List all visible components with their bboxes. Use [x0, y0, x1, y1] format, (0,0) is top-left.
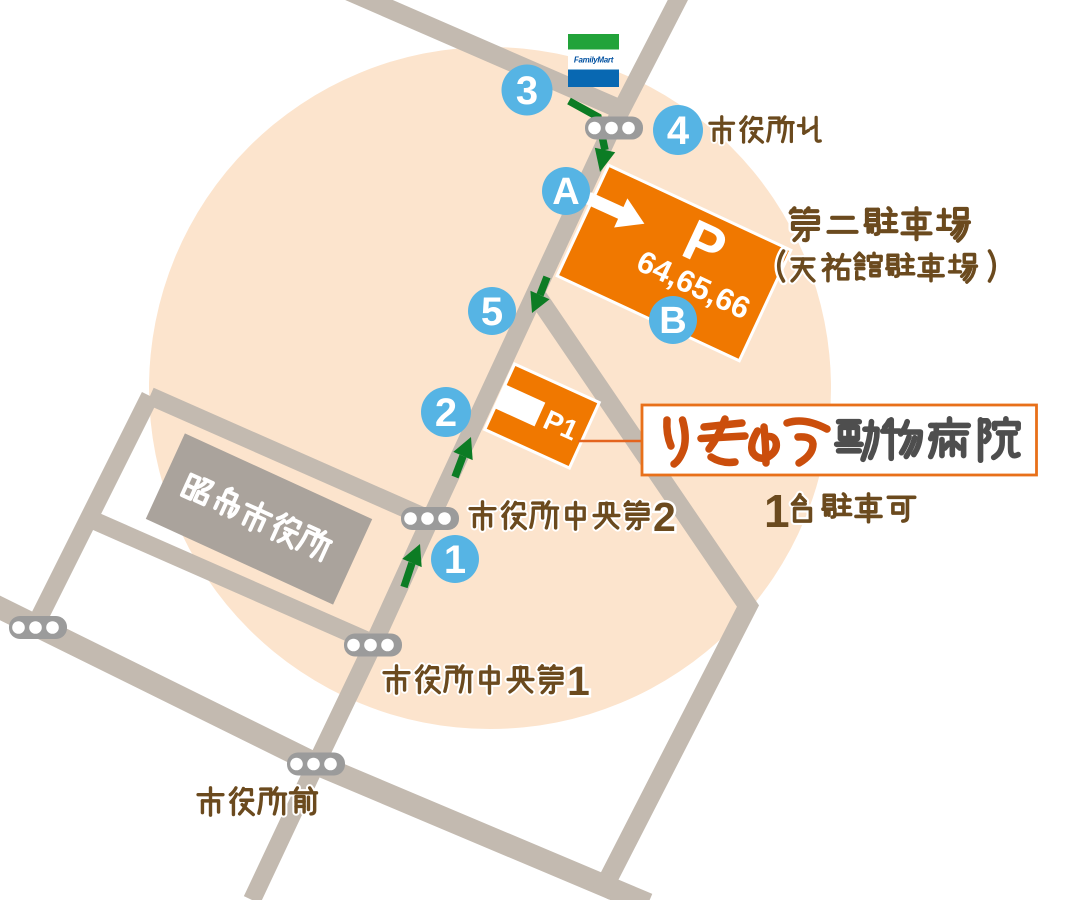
svg-text:2: 2 — [435, 391, 457, 435]
svg-text:2: 2 — [653, 494, 676, 540]
svg-text:A: A — [552, 171, 579, 213]
svg-text:FamilyMart: FamilyMart — [574, 56, 614, 65]
svg-text:5: 5 — [481, 290, 503, 334]
svg-text:1: 1 — [764, 485, 790, 537]
svg-text:B: B — [659, 300, 686, 342]
svg-text:3: 3 — [516, 69, 538, 113]
svg-text:1: 1 — [567, 658, 590, 704]
svg-text:1: 1 — [444, 538, 466, 582]
svg-text:4: 4 — [667, 109, 690, 153]
